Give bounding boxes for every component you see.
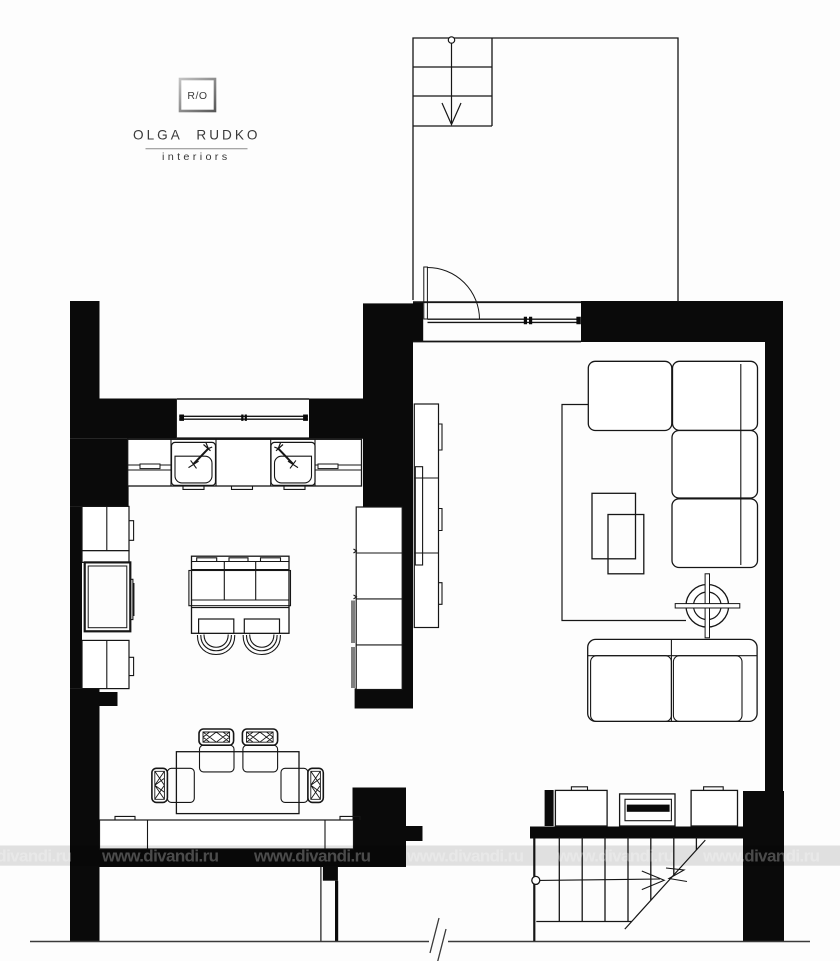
svg-text:R/O: R/O xyxy=(187,90,207,102)
svg-text:www.divandi.ru: www.divandi.ru xyxy=(101,847,219,866)
svg-text:www.divandi.ru: www.divandi.ru xyxy=(556,847,674,866)
svg-text:www.divandi.ru: www.divandi.ru xyxy=(406,847,524,866)
svg-text:interiors: interiors xyxy=(162,151,231,163)
svg-text:www.divandi.ru: www.divandi.ru xyxy=(253,847,371,866)
svg-text:www.divandi.ru: www.divandi.ru xyxy=(702,847,820,866)
svg-text:OLGA RUDKO: OLGA RUDKO xyxy=(133,127,261,143)
svg-text:www.divandi.ru: www.divandi.ru xyxy=(0,847,72,866)
